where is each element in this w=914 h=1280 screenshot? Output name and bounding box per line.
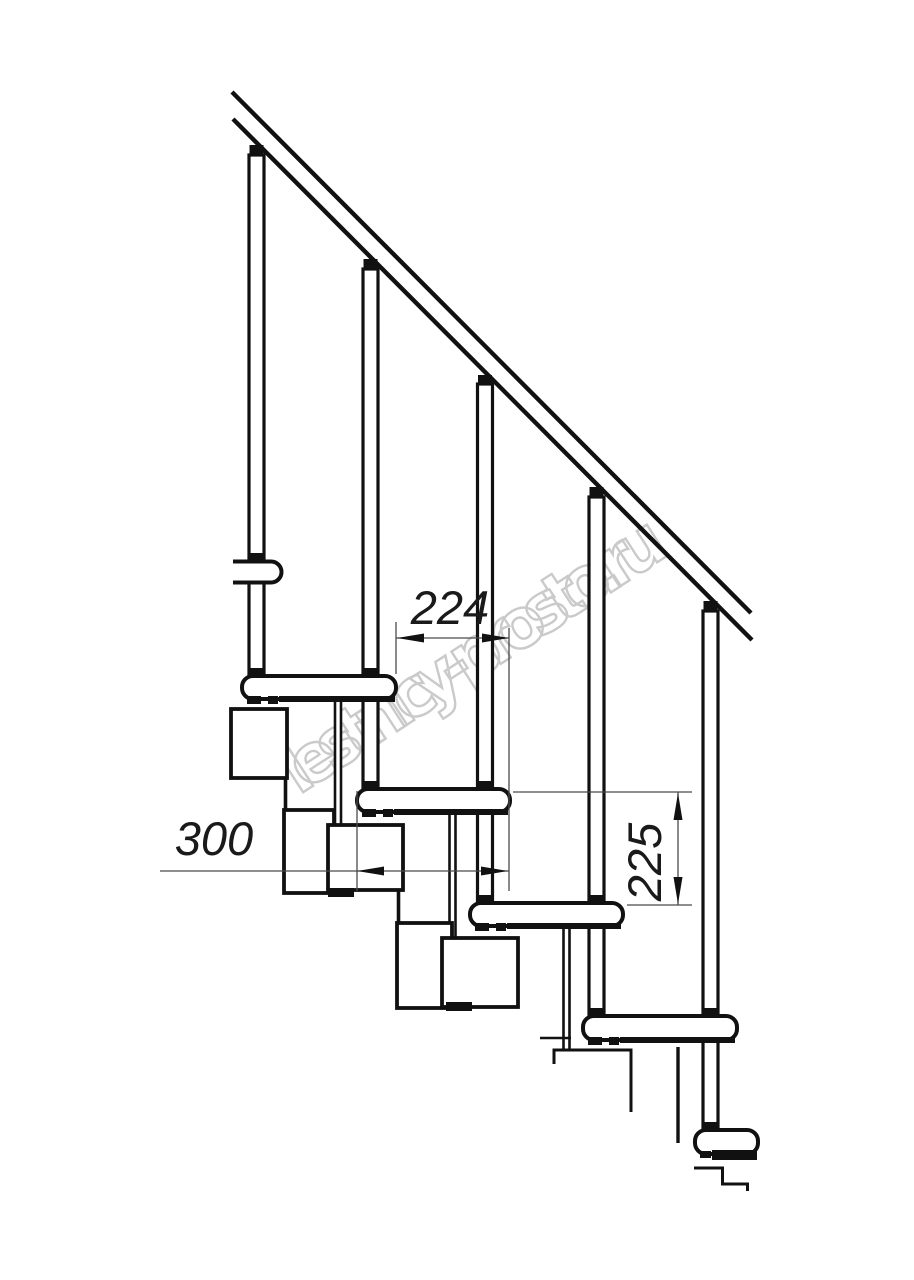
arrow-down-icon — [674, 877, 683, 904]
clamp — [589, 895, 605, 904]
baluster-3 — [478, 384, 493, 903]
baluster-1 — [249, 155, 264, 676]
bottom-break-line — [694, 1168, 748, 1191]
module-junction-shadow-2 — [446, 1002, 472, 1011]
handrail-connector — [364, 259, 378, 269]
upper-bracket — [233, 562, 282, 583]
clamp — [363, 781, 379, 790]
tread-2 — [357, 789, 510, 812]
module-junction-shadow-1 — [328, 888, 354, 897]
staircase-side-view-drawing: 224 300 225 — [0, 0, 914, 1280]
handrail-connector — [590, 487, 604, 497]
arrow-left-icon — [397, 634, 424, 643]
clamp — [248, 553, 264, 562]
clamp — [703, 1008, 719, 1017]
arrow-right-icon — [481, 867, 508, 876]
tread-1 — [242, 676, 396, 699]
module-rod-2 — [450, 810, 456, 940]
handrail-connector — [704, 601, 718, 611]
cut-step-line — [554, 1050, 631, 1112]
dimension-riser-height-label: 225 — [618, 822, 671, 902]
tread-4 — [583, 1016, 737, 1040]
drawing-canvas: lestnicy-prosto.ru — [0, 0, 914, 1280]
clamp — [248, 668, 264, 677]
baluster-2 — [363, 269, 378, 789]
baluster-4 — [589, 497, 604, 1016]
arrow-up-icon — [674, 793, 683, 820]
module-rod-3 — [564, 924, 570, 1050]
clamp — [363, 668, 379, 677]
tread-3 — [470, 903, 623, 926]
handrail-connector — [250, 145, 264, 155]
arrow-right-icon — [482, 634, 509, 643]
module-box-1 — [231, 709, 287, 778]
handrail-connector — [478, 375, 492, 385]
module-rod-1 — [335, 697, 341, 827]
clamp — [477, 781, 493, 790]
dimension-tread-depth-label: 300 — [175, 812, 253, 865]
clamp — [703, 1122, 719, 1131]
module-box-3 — [442, 938, 518, 1007]
module-box-2 — [328, 825, 403, 890]
clamp — [477, 895, 493, 904]
dimension-going-label: 224 — [410, 581, 489, 634]
tread-under-shadows — [247, 696, 757, 1160]
baluster-5 — [703, 611, 718, 1130]
clamp — [589, 1008, 605, 1017]
